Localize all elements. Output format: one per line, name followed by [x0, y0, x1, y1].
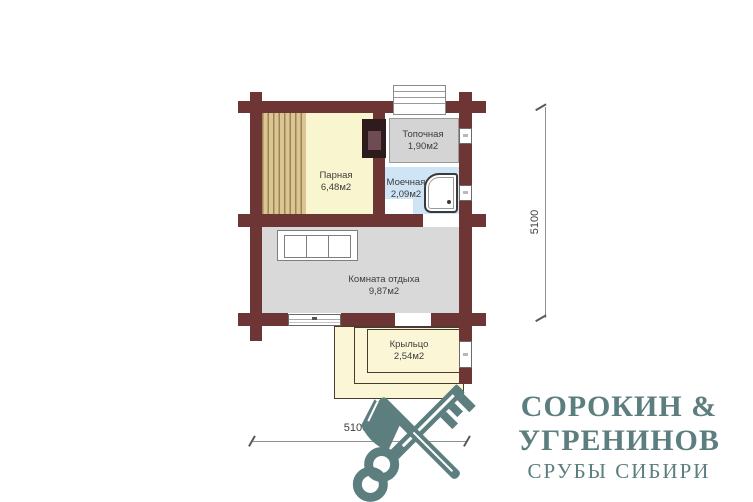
window-pane: [463, 134, 468, 137]
logo-tagline: СРУБЫ СИБИРИ: [503, 459, 735, 484]
chimney-line: [394, 103, 445, 104]
chimney-line: [394, 97, 445, 98]
wall-bottom-right: [431, 313, 486, 326]
dimension-label-right: 5100: [529, 202, 541, 242]
label-topochnaya: Топочная 1,90м2: [383, 129, 463, 153]
room-name: Парная: [296, 170, 376, 182]
dimension-line-right: [545, 107, 546, 318]
sofa-cushion: [328, 236, 350, 257]
wall-porch-right-upper: [459, 326, 472, 341]
logo-company-line2: УГРЕНИНОВ: [503, 424, 735, 458]
wall-top: [238, 101, 486, 113]
wall-bottom-center: [341, 313, 395, 326]
room-area: 6,48м2: [296, 182, 376, 194]
bathtub-drain: [447, 200, 451, 204]
chimney-vent: [393, 85, 446, 115]
chimney-line: [394, 91, 445, 92]
floor-plan-canvas: Парная 6,48м2 Топочная 1,90м2 Моечная 2,…: [0, 0, 753, 502]
label-porch: Крыльцо 2,54м2: [369, 339, 449, 363]
window-pane: [463, 191, 468, 194]
window-moechnaya: [459, 185, 472, 201]
wall-bottom-left: [238, 313, 288, 326]
sofa-cushion: [285, 236, 306, 257]
dimension-tick: [535, 314, 546, 321]
room-area: 1,90м2: [383, 141, 463, 153]
label-moechnaya: Моечная 2,09м2: [366, 177, 446, 201]
sofa-icon: [277, 230, 358, 261]
logo-company-line1: СОРОКИН &: [503, 390, 735, 424]
axe-and-key-logo-icon: [345, 366, 493, 502]
moechnaya-doorway: [385, 199, 413, 214]
wall-middle: [238, 214, 423, 227]
stove-firebox: [368, 131, 381, 150]
room-name: Крыльцо: [369, 339, 449, 351]
room-name: Комната отдыха: [334, 274, 434, 286]
room-area: 2,09м2: [366, 189, 446, 201]
room-area: 2,54м2: [369, 351, 449, 363]
sofa-cushion: [306, 236, 328, 257]
window-tick: [312, 317, 317, 320]
window-rest-room: [288, 314, 341, 326]
sauna-bench-slats: [262, 113, 306, 214]
room-area: 9,87м2: [334, 286, 434, 298]
window-pane: [463, 353, 468, 356]
window-porch: [459, 341, 472, 368]
wall-middle-log-end: [472, 214, 486, 227]
label-parnaya: Парная 6,48м2: [296, 170, 376, 194]
room-name: Моечная: [366, 177, 446, 189]
window-pane: [289, 322, 340, 323]
room-name: Топочная: [383, 129, 463, 141]
sofa-seats: [284, 235, 351, 258]
label-rest-room: Комната отдыха 9,87м2: [334, 274, 434, 298]
